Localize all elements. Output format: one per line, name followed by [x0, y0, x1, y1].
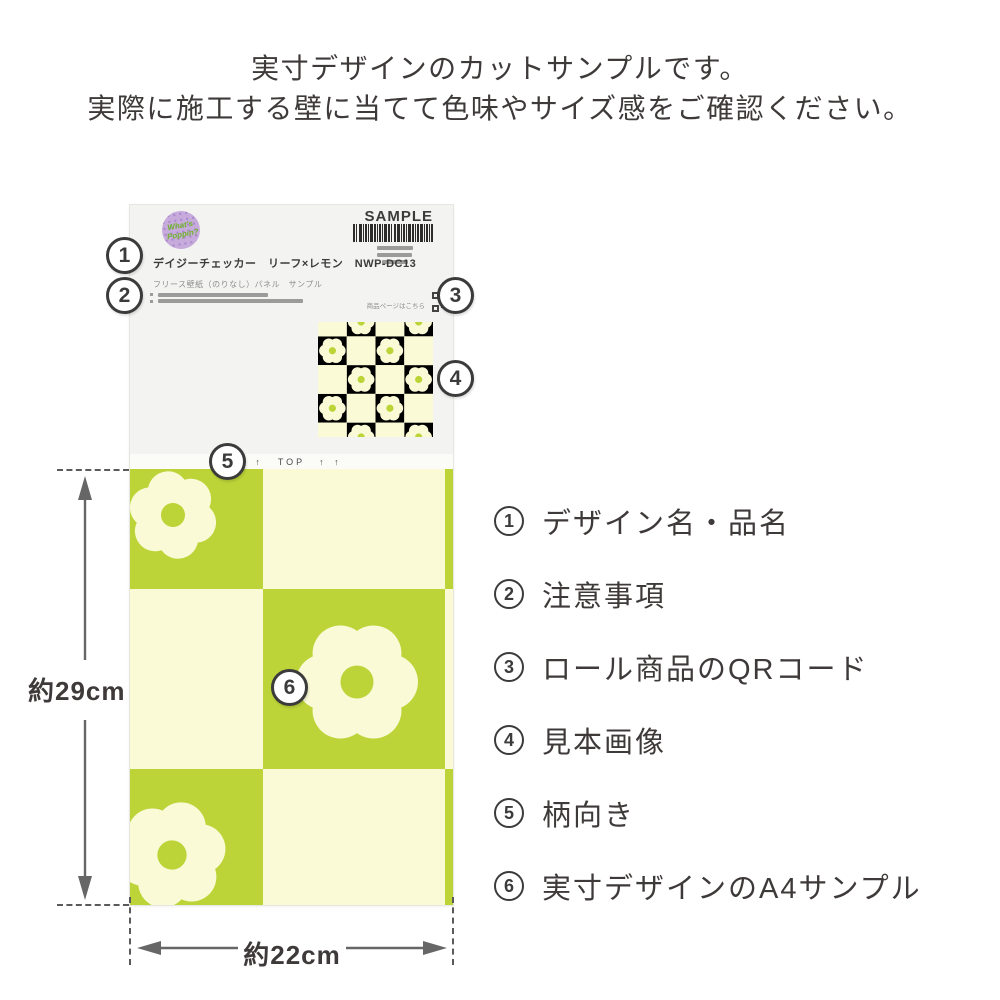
up-arrows-icon: ↑ ↑ [319, 457, 343, 467]
legend-item-design-name: 1 デザイン名・品名 [494, 500, 922, 542]
legend-label-6: 実寸デザインのA4サンプル [542, 865, 922, 907]
legend-num-1: 1 [494, 506, 524, 536]
legend-item-sample-image: 4 見本画像 [494, 719, 922, 761]
legend-item-pattern-direction: 5 柄向き [494, 792, 922, 834]
legend-item-a4-sample: 6 実寸デザインのA4サンプル [494, 865, 922, 907]
width-dimension-label: 約22cm [237, 935, 347, 972]
sample-word: SAMPLE [364, 208, 433, 225]
page: 実寸デザインのカットサンプルです。 実際に施工する壁に当てて色味やサイズ感をご確… [0, 0, 1000, 1000]
legend-num-4: 4 [494, 725, 524, 755]
dimension-dash-bottom [57, 904, 129, 906]
legend-label-5: 柄向き [542, 792, 635, 834]
header-text: 実寸デザインのカットサンプルです。 実際に施工する壁に当てて色味やサイズ感をご確… [0, 49, 1000, 129]
top-marking: TOP [278, 457, 305, 467]
sample-label: What's Poppin? SAMPLE [130, 205, 453, 454]
header-line2: 実際に施工する壁に当てて色味やサイズ感をご確認ください。 [0, 89, 1000, 129]
pattern-green-square [445, 469, 453, 589]
qr-caption: 商品ページはこちら [330, 300, 425, 310]
legend-num-3: 3 [494, 652, 524, 682]
dimension-dash-left [129, 897, 131, 965]
daisy-flower-icon [295, 620, 419, 744]
legend-label-1: デザイン名・品名 [542, 500, 790, 542]
callout-1: 1 [106, 237, 143, 274]
redacted-line [158, 293, 268, 297]
legend: 1 デザイン名・品名 2 注意事項 3 ロール商品のQRコード 4 見本画像 5… [494, 500, 922, 907]
barcode-icon [353, 224, 433, 242]
redacted-line [158, 299, 303, 303]
sample-sheet: What's Poppin? SAMPLE [130, 205, 453, 905]
dimension-dash-right [452, 897, 454, 965]
callout-4: 4 [437, 360, 474, 397]
header-line1: 実寸デザインのカットサンプルです。 [0, 49, 1000, 89]
legend-num-6: 6 [494, 871, 524, 901]
legend-item-precautions: 2 注意事項 [494, 573, 922, 615]
callout-5: 5 [209, 443, 246, 480]
legend-item-qr-code: 3 ロール商品のQRコード [494, 646, 922, 688]
dimension-dash-top [57, 469, 129, 471]
redacted-line [377, 246, 413, 250]
product-subtitle: フリース壁紙（のりなし）パネル サンプル [153, 279, 322, 290]
callout-3: 3 [437, 277, 474, 314]
pattern-green-square [445, 769, 453, 905]
callout-6: 6 [271, 669, 308, 706]
legend-label-3: ロール商品のQRコード [542, 646, 869, 688]
height-dimension-label: 約29cm [28, 671, 124, 708]
legend-label-4: 見本画像 [542, 719, 666, 761]
brand-badge-text: What's Poppin? [165, 219, 198, 242]
redacted-bullet [150, 300, 153, 303]
pattern-direction-strip: ↑ ↑ TOP ↑ ↑ [130, 454, 453, 469]
legend-num-2: 2 [494, 579, 524, 609]
product-title: デイジーチェッカー リーフ×レモン NWP-DC13 [153, 255, 416, 271]
swatch-image [318, 322, 433, 437]
callout-2: 2 [106, 277, 143, 314]
redacted-bullet [150, 293, 153, 296]
brand-badge: What's Poppin? [159, 208, 203, 252]
legend-num-5: 5 [494, 798, 524, 828]
legend-label-2: 注意事項 [542, 573, 666, 615]
